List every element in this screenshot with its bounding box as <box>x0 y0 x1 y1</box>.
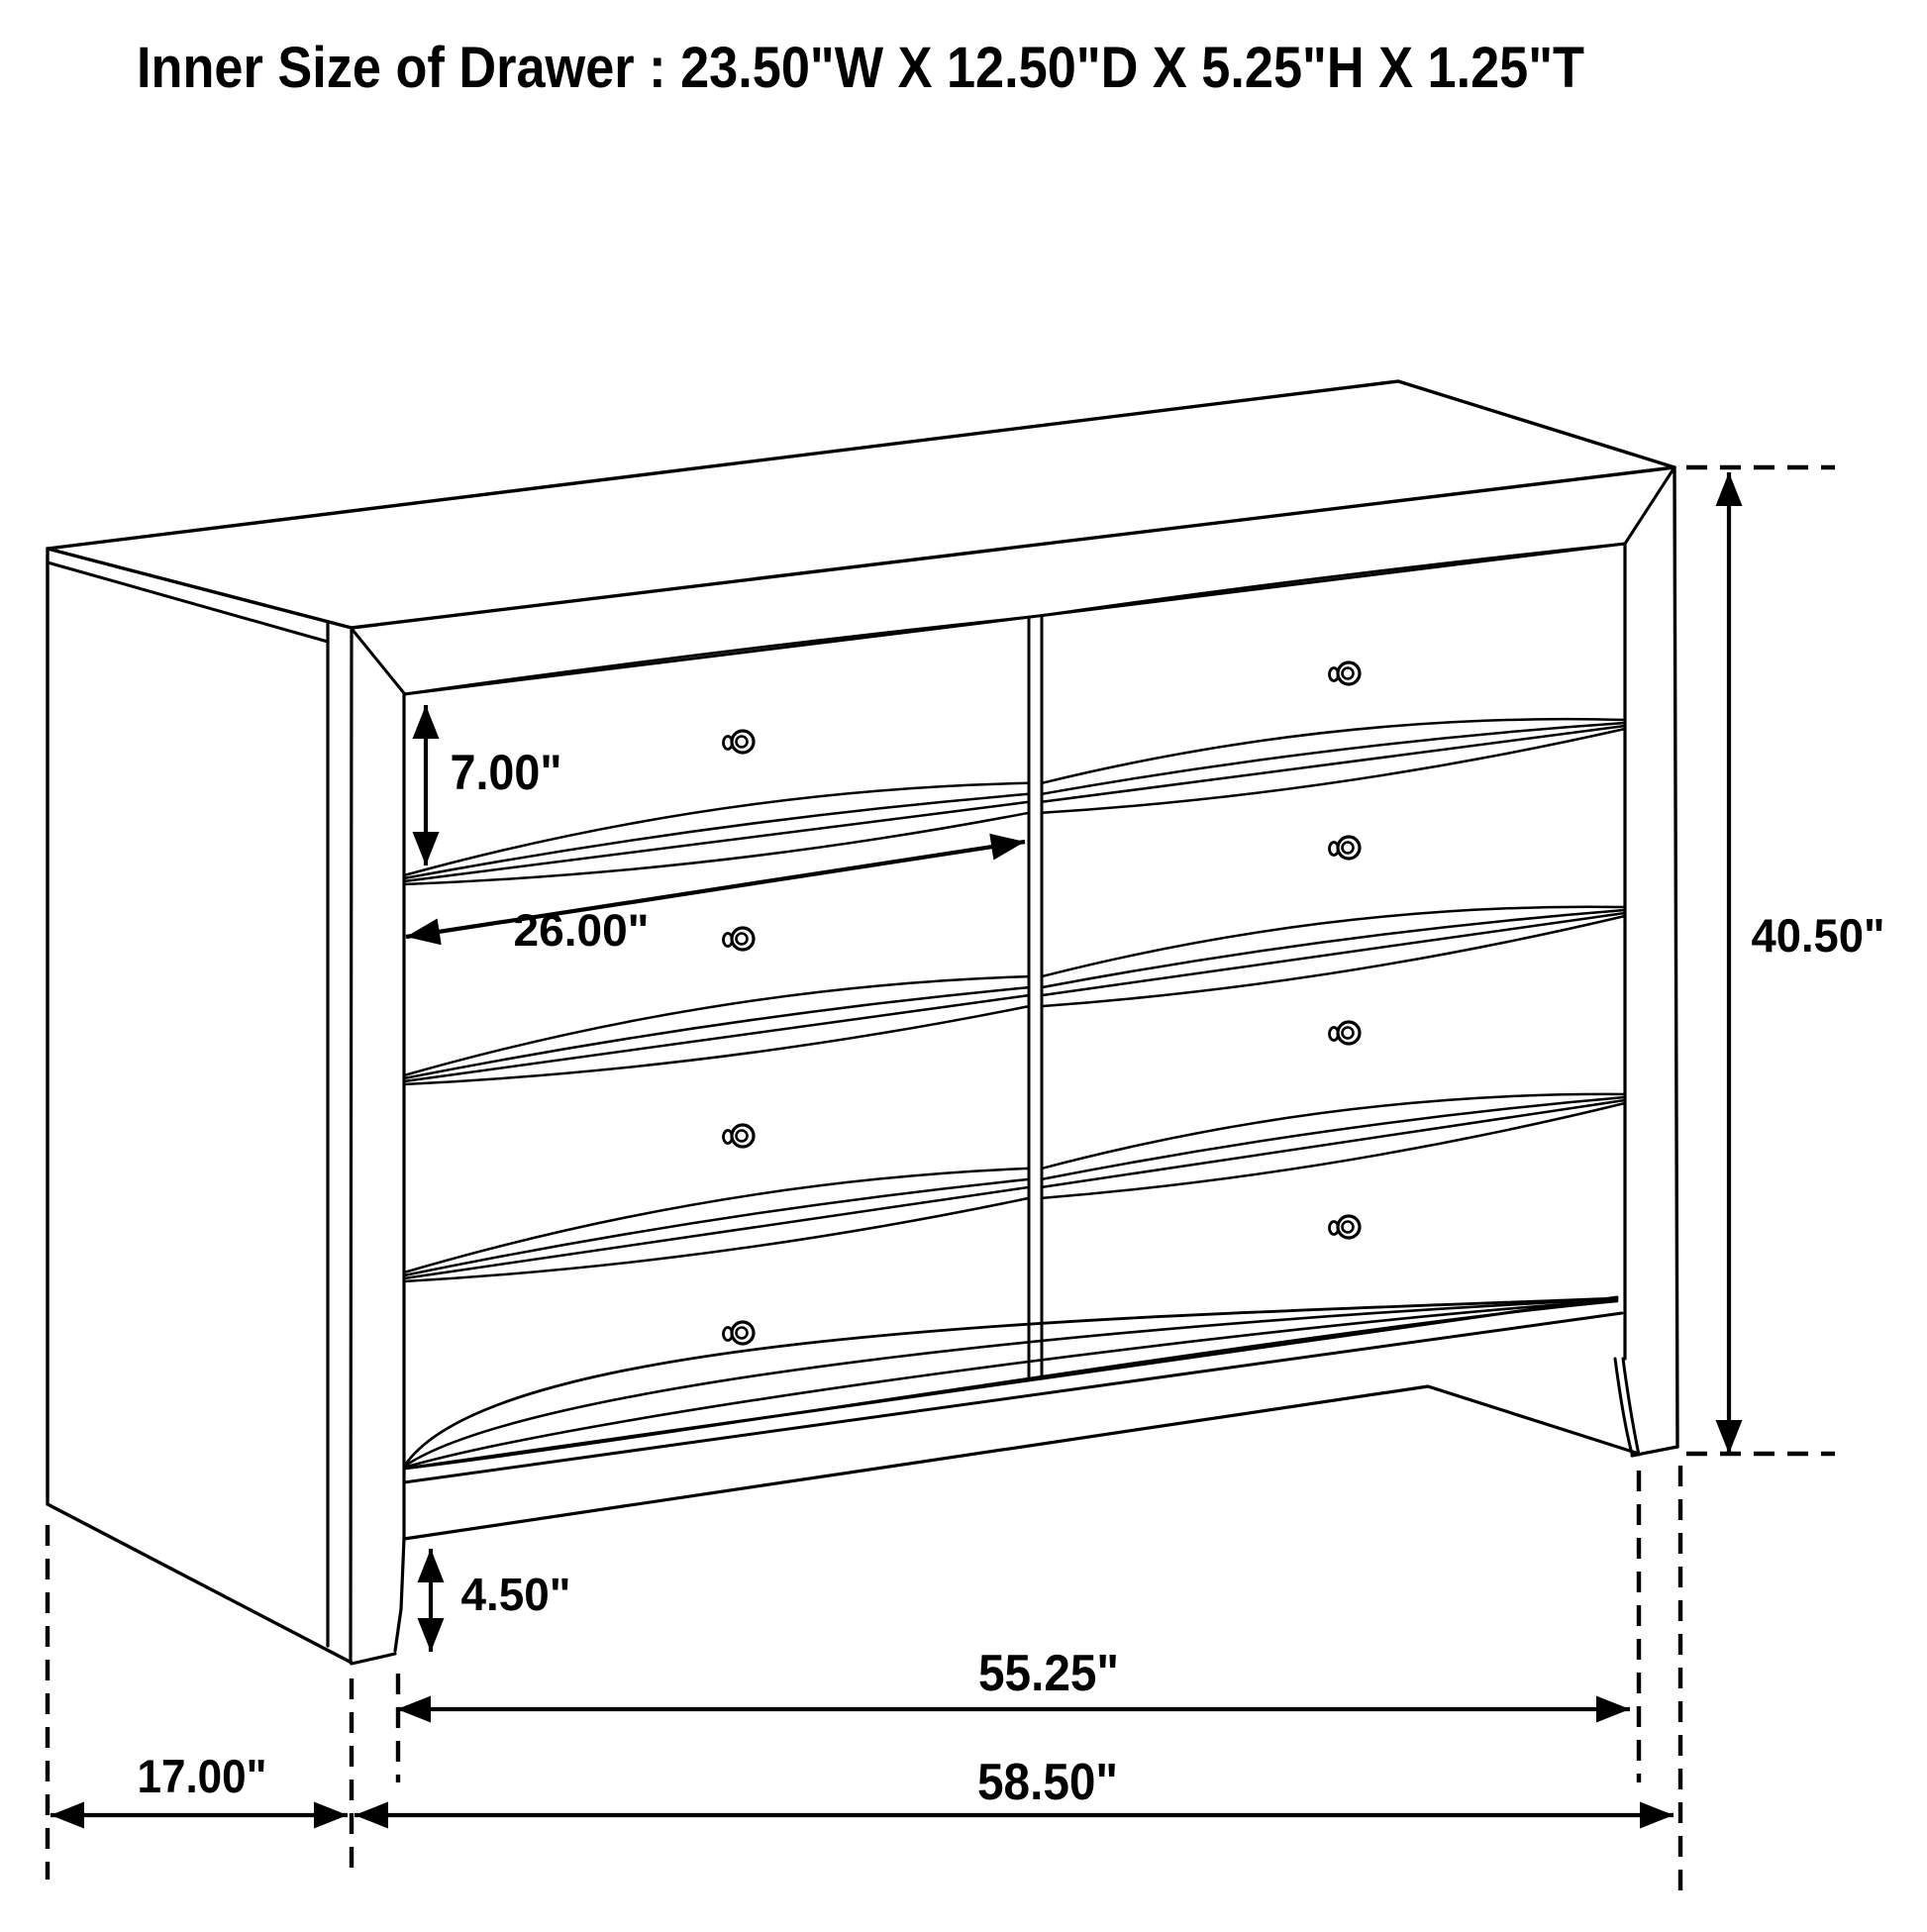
svg-text:26.00": 26.00" <box>514 905 650 956</box>
svg-text:7.00": 7.00" <box>451 745 562 800</box>
svg-text:58.50": 58.50" <box>977 1754 1118 1811</box>
svg-text:55.25": 55.25" <box>978 1645 1119 1702</box>
svg-text:Inner Size of Drawer : 23.50"W: Inner Size of Drawer : 23.50"W X 12.50"D… <box>137 36 1584 100</box>
svg-text:4.50": 4.50" <box>461 1569 571 1620</box>
svg-text:40.50": 40.50" <box>1752 909 1885 962</box>
svg-text:17.00": 17.00" <box>138 1750 267 1802</box>
